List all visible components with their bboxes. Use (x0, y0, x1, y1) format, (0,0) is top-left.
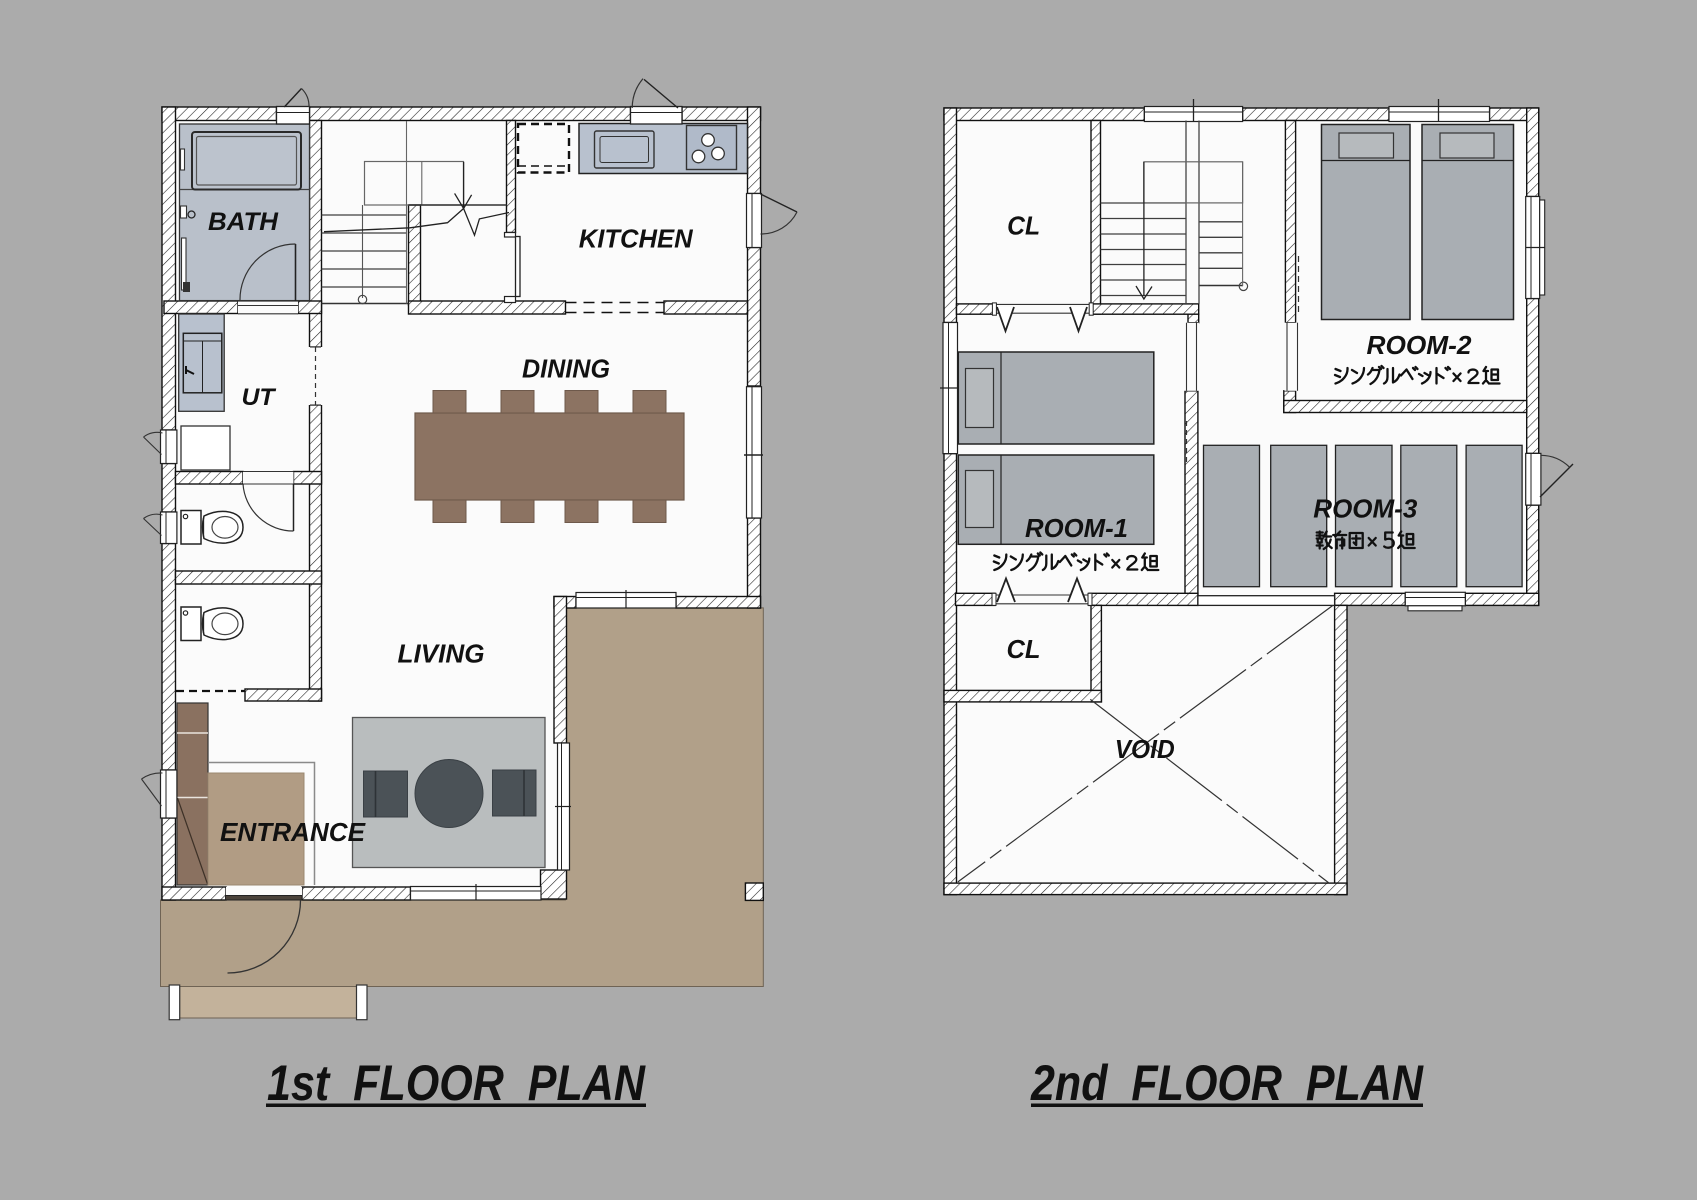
svg-text:CL: CL (1007, 634, 1041, 664)
svg-text:ROOM-2: ROOM-2 (1367, 330, 1473, 360)
svg-text:DINING: DINING (522, 354, 610, 384)
svg-text:ENTRANCE: ENTRANCE (220, 817, 366, 847)
svg-text:VOID: VOID (1115, 734, 1175, 764)
svg-text:BATH: BATH (208, 208, 279, 236)
svg-text:KITCHEN: KITCHEN (579, 224, 694, 254)
svg-text:UT: UT (242, 384, 277, 411)
svg-text:1st FLOOR PLAN: 1st FLOOR PLAN (267, 1055, 646, 1111)
svg-text:LIVING: LIVING (398, 639, 485, 669)
svg-text:CL: CL (1007, 211, 1040, 241)
svg-text:ROOM-1: ROOM-1 (1025, 513, 1128, 543)
svg-text:ROOM-3: ROOM-3 (1313, 493, 1418, 523)
svg-text:2nd FLOOR PLAN: 2nd FLOOR PLAN (1030, 1055, 1424, 1111)
